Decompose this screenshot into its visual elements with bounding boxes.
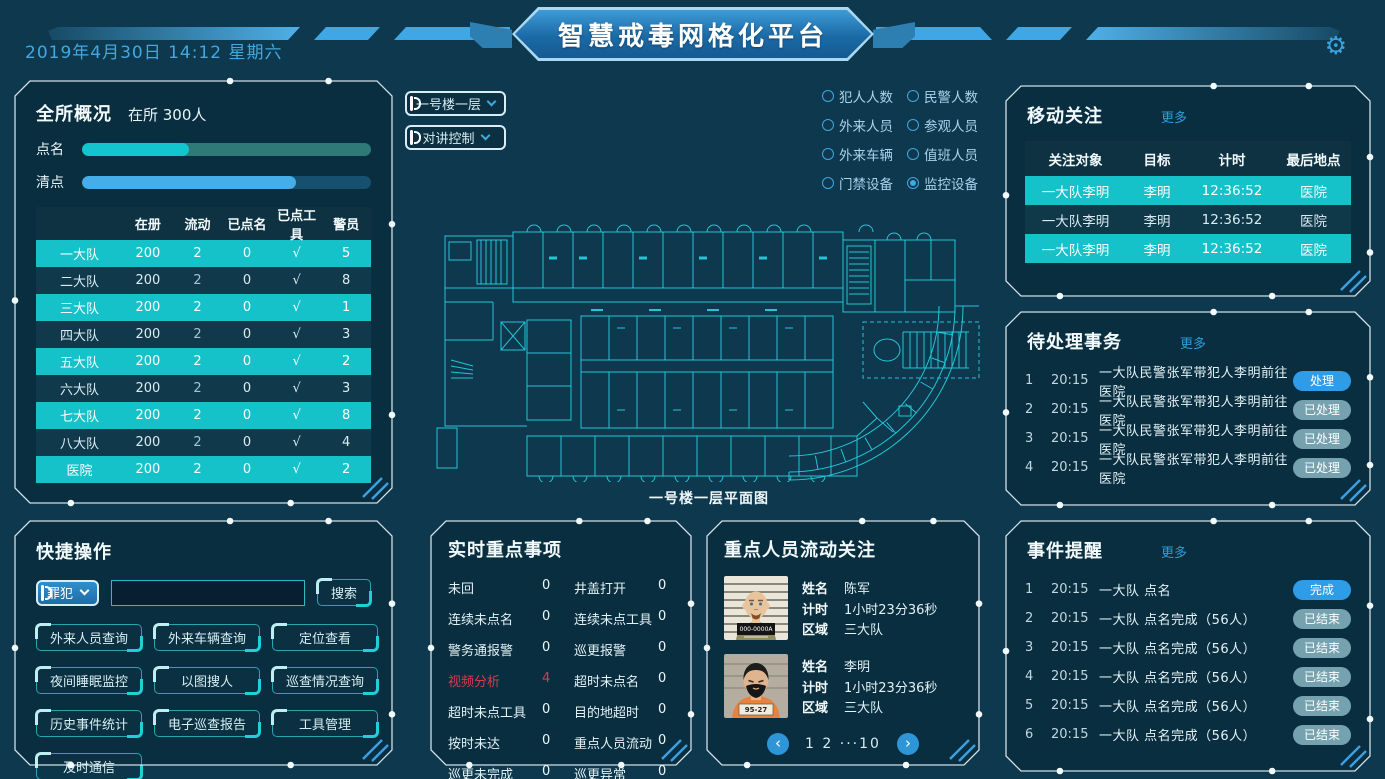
list-item: 320:15一大队 点名完成（56人）已结束 (1005, 633, 1371, 662)
count-progress-track (82, 176, 371, 189)
mobile-focus-more-link[interactable]: 更多 (1161, 107, 1187, 126)
visitor-query-button[interactable]: 外来人员查询 (36, 624, 142, 651)
person-area: 三大队 (844, 697, 883, 716)
floor-plan-blueprint (430, 210, 988, 482)
quick-actions-title: 快捷操作 (36, 542, 112, 563)
radio-icon (822, 177, 834, 189)
page-numbers[interactable]: 1 2 ···10 (805, 736, 881, 752)
location-view-button[interactable]: 定位查看 (272, 624, 378, 651)
history-stats-button[interactable]: 历史事件统计 (36, 710, 142, 737)
table-row: 一大队李明李明12:36:52医院 (1025, 234, 1351, 263)
mobile-focus-table: 关注对象目标计时最后地点 一大队李明李明12:36:52医院 一大队李明李明12… (1025, 141, 1351, 263)
radio-police-count[interactable]: 民警人数 (907, 86, 984, 106)
mugshot-photo: 95-27 (724, 654, 788, 718)
patrol-status-query-button[interactable]: 巡查情况查询 (272, 667, 378, 694)
radio-access-devices[interactable]: 门禁设备 (822, 173, 899, 193)
video-analysis-count: 4 (542, 671, 568, 690)
dropdown-bracket-decor (410, 96, 419, 111)
dropdown-bracket-decor (410, 130, 419, 145)
svg-text:000-0000A: 000-0000A (740, 626, 774, 633)
chevron-down-icon (80, 586, 90, 596)
pending-tasks-list: 120:15一大队民警张军带犯人李明前往医院处理 220:15一大队民警张军带犯… (1005, 366, 1371, 482)
squads-table-header: 在册 流动 已点名 已点工具 警员 (36, 207, 371, 240)
header-decor-bar (1006, 27, 1072, 40)
map-layer-radio-group: 犯人人数 民警人数 外来人员 参观人员 外来车辆 值班人员 门禁设备 监控设备 (822, 86, 984, 193)
realtime-items-panel: 实时重点事项 未回0 井盖打开0 连续未点名0 连续未点工具0 警务通报警0 巡… (430, 520, 692, 766)
chevron-down-icon (480, 131, 490, 141)
table-row: 六大队20020√3 (36, 375, 371, 402)
rollcall-progress-track (82, 143, 371, 156)
radio-duty-staff[interactable]: 值班人员 (907, 144, 984, 164)
dashboard: 2019年4月30日 14:12 星期六 智慧戒毒网格化平台 ⚙ 全所概况 在所… (0, 0, 1385, 779)
radio-icon (822, 119, 834, 131)
list-item: 420:15一大队 点名完成（56人）已结束 (1005, 662, 1371, 691)
radio-prisoner-count[interactable]: 犯人人数 (822, 86, 899, 106)
overview-title: 全所概况 (36, 100, 112, 126)
handled-badge[interactable]: 已处理 (1293, 458, 1351, 478)
list-item: 620:15一大队 点名完成（56人）已结束 (1005, 720, 1371, 749)
event-reminders-title: 事件提醒 (1027, 537, 1103, 563)
table-row: 二大队20020√8 (36, 267, 371, 294)
table-row: 一大队李明李明12:36:52医院 (1025, 205, 1351, 234)
banner-wing-left (470, 22, 512, 48)
event-reminders-panel: 事件提醒 更多 120:15一大队 点名完成 220:15一大队 点名完成（56… (1005, 520, 1371, 772)
page-title: 智慧戒毒网格化平台 (558, 16, 828, 53)
ended-badge[interactable]: 已结束 (1293, 609, 1351, 629)
squads-table: 在册 流动 已点名 已点工具 警员 一大队20020√5 二大队20020√8 … (36, 207, 371, 483)
pagination: ‹ 1 2 ···10 › (724, 733, 962, 755)
chevron-down-icon (487, 97, 497, 107)
radio-surveillance-devices[interactable]: 监控设备 (907, 173, 984, 193)
night-sleep-monitor-button[interactable]: 夜间睡眠监控 (36, 667, 142, 694)
realtime-items-title: 实时重点事项 (448, 540, 562, 561)
realtime-stats-grid: 未回0 井盖打开0 连续未点名0 连续未点工具0 警务通报警0 巡更报警0 视频… (448, 578, 674, 779)
svg-text:95-27: 95-27 (745, 706, 768, 714)
person-card: 000-0000A 姓名陈军 计时1小时23分36秒 区域三大队 (724, 576, 962, 640)
radio-icon (907, 177, 919, 189)
radio-icon (822, 148, 834, 160)
event-reminders-more-link[interactable]: 更多 (1161, 542, 1187, 561)
ended-badge[interactable]: 已结束 (1293, 667, 1351, 687)
floor-select-dropdown[interactable]: 一号楼一层 (405, 91, 506, 116)
prev-page-button[interactable]: ‹ (767, 733, 789, 755)
rollcall-progress-fill (82, 143, 189, 156)
person-timer: 1小时23分36秒 (844, 677, 937, 696)
search-input[interactable] (111, 580, 305, 606)
ended-badge[interactable]: 已结束 (1293, 638, 1351, 658)
radio-icon (907, 119, 919, 131)
list-item: 220:15一大队 点名完成（56人）已结束 (1005, 604, 1371, 633)
person-area: 三大队 (844, 619, 883, 638)
search-type-select[interactable]: 罪犯 (36, 580, 99, 606)
overview-panel: 全所概况 在所 300人 点名 清点 在册 流动 已点名 已点工具 警员 (14, 80, 393, 504)
mobile-focus-title: 移动关注 (1027, 102, 1103, 128)
pending-tasks-more-link[interactable]: 更多 (1180, 333, 1206, 352)
list-item: 120:15一大队 点名完成 (1005, 575, 1371, 604)
handle-button[interactable]: 处理 (1293, 371, 1351, 391)
header-decor-bar (314, 27, 380, 40)
handled-badge[interactable]: 已处理 (1293, 400, 1351, 420)
instant-comm-button[interactable]: 及时通信 (36, 753, 142, 779)
tool-management-button[interactable]: 工具管理 (272, 710, 378, 737)
list-item: 420:15一大队民警张军带犯人李明前往医院已处理 (1005, 453, 1371, 482)
count-progress-fill (82, 176, 296, 189)
video-analysis-alert: 视频分析 (448, 671, 536, 690)
count-progress: 清点 (36, 172, 371, 192)
floor-select-label: 一号楼一层 (416, 94, 481, 113)
handled-badge[interactable]: 已处理 (1293, 429, 1351, 449)
table-row: 一大队20020√5 (36, 240, 371, 267)
header-decor-bar (1086, 27, 1340, 40)
ended-badge[interactable]: 已结束 (1293, 725, 1351, 745)
table-row: 七大队20020√8 (36, 402, 371, 429)
table-row: 八大队20020√4 (36, 429, 371, 456)
key-persons-panel: 重点人员流动关注 000-0000A (706, 520, 980, 766)
rollcall-label: 点名 (36, 139, 70, 159)
banner-wing-right (873, 22, 915, 48)
search-button[interactable]: 搜索 (317, 579, 371, 606)
pending-tasks-title: 待处理事务 (1027, 328, 1122, 354)
intercom-control-label: 对讲控制 (422, 128, 474, 147)
count-label: 清点 (36, 172, 70, 192)
vehicle-query-button[interactable]: 外来车辆查询 (154, 624, 260, 651)
quick-actions-panel: 快捷操作 罪犯 搜索 外来人员查询 外来车辆查询 定位查看 夜间睡眠监控 以图搜… (14, 520, 393, 766)
e-patrol-report-button[interactable]: 电子巡查报告 (154, 710, 260, 737)
dropdown-bracket-decor (41, 585, 50, 601)
person-name: 陈军 (844, 578, 870, 597)
radio-foreign-vehicles[interactable]: 外来车辆 (822, 144, 899, 164)
table-row: 三大队20020√1 (36, 294, 371, 321)
ended-badge[interactable]: 已结束 (1293, 696, 1351, 716)
person-timer: 1小时23分36秒 (844, 599, 937, 618)
gear-icon[interactable]: ⚙ (1325, 33, 1347, 58)
person-name: 李明 (844, 656, 870, 675)
list-item: 520:15一大队 点名完成（56人）已结束 (1005, 691, 1371, 720)
radio-icon (822, 90, 834, 102)
event-reminders-list: 120:15一大队 点名完成 220:15一大队 点名完成（56人）已结束 32… (1005, 575, 1371, 749)
radio-visitors[interactable]: 外来人员 (822, 115, 899, 135)
occupancy-count: 在所 300人 (128, 104, 206, 125)
image-search-button[interactable]: 以图搜人 (154, 667, 260, 694)
mugshot-photo: 000-0000A (724, 576, 788, 640)
key-persons-title: 重点人员流动关注 (724, 540, 876, 561)
person-card: 95-27 姓名李明 计时1小时23分36秒 区域三大队 (724, 654, 962, 718)
app-title-banner-inner: 智慧戒毒网格化平台 (515, 10, 871, 58)
radio-icon (907, 90, 919, 102)
pending-tasks-panel: 待处理事务 更多 120:15一大队民警张军带犯人李明前往医院处理 220:15… (1005, 311, 1371, 506)
table-row: 一大队李明李明12:36:52医院 (1025, 176, 1351, 205)
table-row: 五大队20020√2 (36, 348, 371, 375)
complete-button[interactable]: 完成 (1293, 580, 1351, 600)
quick-action-grid: 外来人员查询 外来车辆查询 定位查看 夜间睡眠监控 以图搜人 巡查情况查询 历史… (36, 624, 371, 779)
table-row: 四大队20020√3 (36, 321, 371, 348)
rollcall-progress: 点名 (36, 139, 371, 159)
app-title-banner: 智慧戒毒网格化平台 (512, 7, 874, 61)
mobile-focus-panel: 移动关注 更多 关注对象目标计时最后地点 一大队李明李明12:36:52医院 一… (1005, 85, 1371, 297)
mobile-focus-table-header: 关注对象目标计时最后地点 (1025, 141, 1351, 176)
datetime-display: 2019年4月30日 14:12 星期六 (25, 38, 283, 63)
radio-observers[interactable]: 参观人员 (907, 115, 984, 135)
floor-plan-caption: 一号楼一层平面图 (430, 488, 988, 508)
intercom-control-dropdown[interactable]: 对讲控制 (405, 125, 506, 150)
next-page-button[interactable]: › (897, 733, 919, 755)
table-row: 医院20020√2 (36, 456, 371, 483)
radio-icon (907, 148, 919, 160)
